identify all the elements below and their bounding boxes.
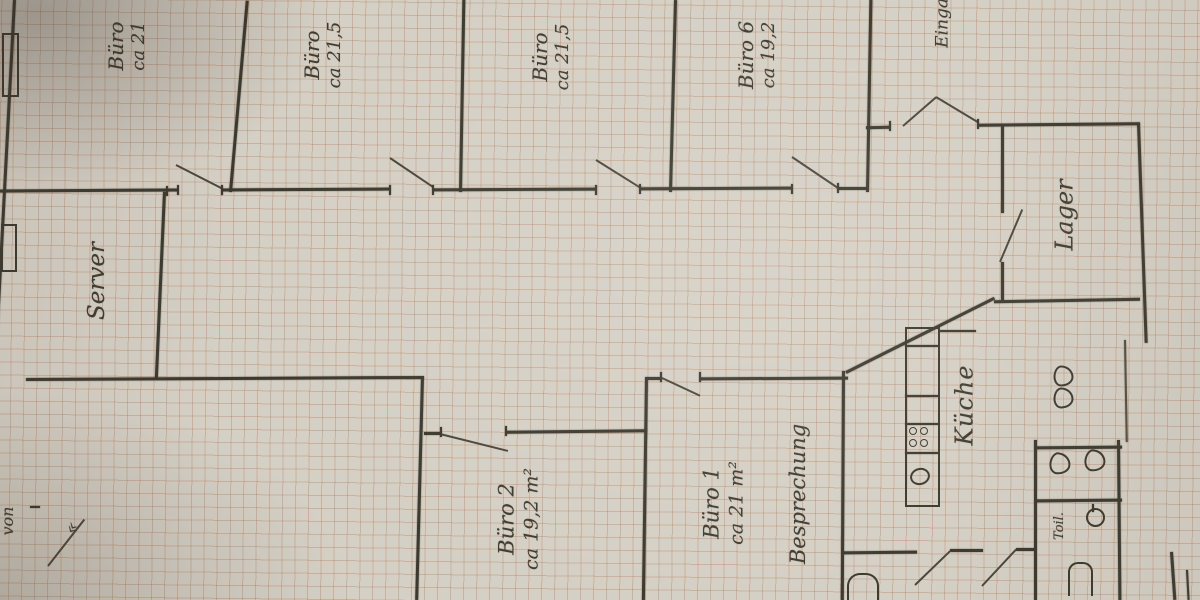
room-name: Büro 1 (700, 461, 726, 545)
door-tick (166, 186, 168, 196)
door-tick (432, 185, 434, 195)
note-label-von: von (0, 507, 18, 536)
toilet-icon (1086, 508, 1105, 527)
door-arch-icon (847, 573, 879, 600)
room-area: ca 19,2 m² (520, 468, 543, 570)
wall-kitchen-bottom-2 (950, 549, 983, 552)
room-name: Büro (104, 21, 128, 70)
door-tick (791, 184, 793, 194)
door-tick (837, 183, 839, 193)
counter-divider (905, 423, 938, 425)
window-icon (1, 224, 17, 272)
counter-divider (905, 395, 938, 397)
counter-divider (905, 345, 938, 347)
room-area: ca 21 (128, 21, 150, 70)
room-label-buero-top-3: Büro ca 21,5 (528, 24, 574, 91)
wall-kitchen-bottom-3 (1016, 548, 1035, 551)
wall-office2-top-1 (424, 432, 440, 435)
door-tick (699, 372, 701, 382)
door-tick (389, 185, 391, 195)
room-name: Büro 6 (734, 21, 758, 89)
stove-burner-icon (909, 427, 917, 435)
toilet-icon (1092, 504, 1094, 512)
counter-divider (905, 452, 938, 454)
room-label-besprechung: Besprechung (786, 424, 812, 564)
room-label-toil: Toil. (1052, 512, 1068, 540)
room-name: Büro 2 (495, 468, 521, 570)
stove-burner-icon (920, 439, 928, 447)
room-label-server: Server (83, 242, 111, 320)
wall-toilet-left (1034, 440, 1037, 600)
stove-burner-icon (909, 439, 917, 447)
room-label-lager: Lager (1050, 179, 1079, 250)
door-tick (639, 184, 641, 194)
wall-kitchen-bottom-1 (843, 551, 917, 555)
door-tick (977, 119, 979, 129)
door-tick (595, 185, 597, 195)
wall-corridor-top-5 (838, 187, 868, 190)
door-tick (505, 426, 507, 436)
room-name: Büro (300, 22, 324, 89)
room-label-buero-1: Büro 1 ca 21 m² (700, 461, 749, 545)
window-icon (2, 33, 19, 97)
door-tick (440, 427, 442, 437)
room-area: ca 19,2 (758, 21, 780, 89)
door-tick (30, 506, 40, 508)
door-tick (221, 185, 223, 195)
door-tick (660, 372, 662, 382)
stove-burner-icon (920, 427, 928, 435)
room-area: ca 21 m² (725, 461, 748, 545)
room-label-kueche: Küche (950, 365, 979, 446)
room-label-eingang: Eingang (933, 0, 954, 48)
room-area: ca 21,5 (552, 24, 574, 91)
room-label-buero-top-2: Büro ca 21,5 (300, 22, 346, 89)
door-tick (177, 185, 179, 195)
wall-storage-left-1 (1001, 125, 1004, 213)
floorplan-photo: » Büro ca 21 Büro ca 21,5 Büro ca 21,5 B… (0, 0, 1200, 600)
room-label-buero-6: Büro 6 ca 19,2 (734, 21, 780, 89)
door-arch-icon (1068, 562, 1093, 596)
room-name: Büro (528, 24, 552, 91)
room-area: ca 21,5 (324, 22, 346, 89)
door-tick (889, 121, 891, 131)
wall-counter-return (939, 330, 976, 332)
wall-storage-left-2 (1001, 262, 1004, 302)
room-label-buero-top-1: Büro ca 21 (104, 21, 150, 70)
room-label-buero-2: Büro 2 ca 19,2 m² (495, 468, 544, 570)
